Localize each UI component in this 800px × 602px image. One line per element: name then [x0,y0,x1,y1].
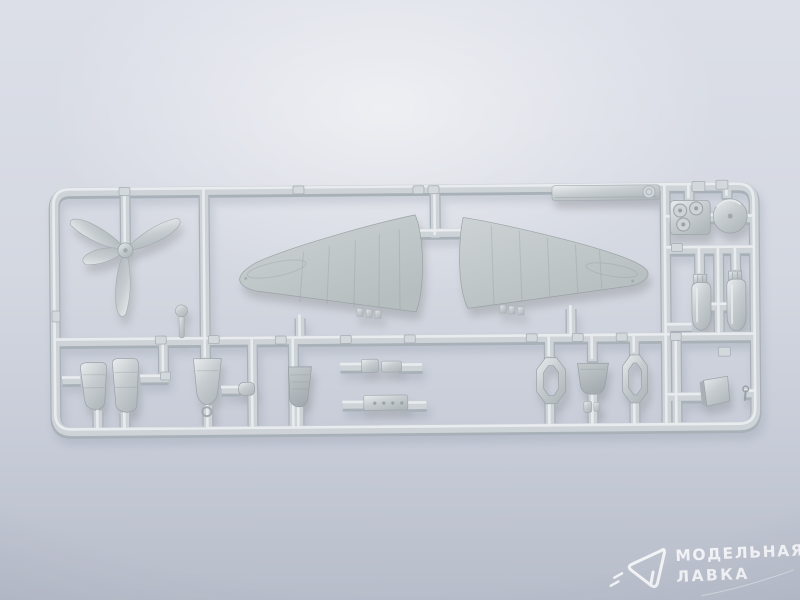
photo-scene: МОДЕЛЬНАЯ ЛАВКА [0,0,800,600]
watermark: МОДЕЛЬНАЯ ЛАВКА [597,536,799,602]
watermark-text: МОДЕЛЬНАЯ ЛАВКА [675,543,800,585]
sprue-photo [0,0,800,600]
watermark-line1: МОДЕЛЬНАЯ [675,543,800,564]
sprue-frame [51,180,759,440]
